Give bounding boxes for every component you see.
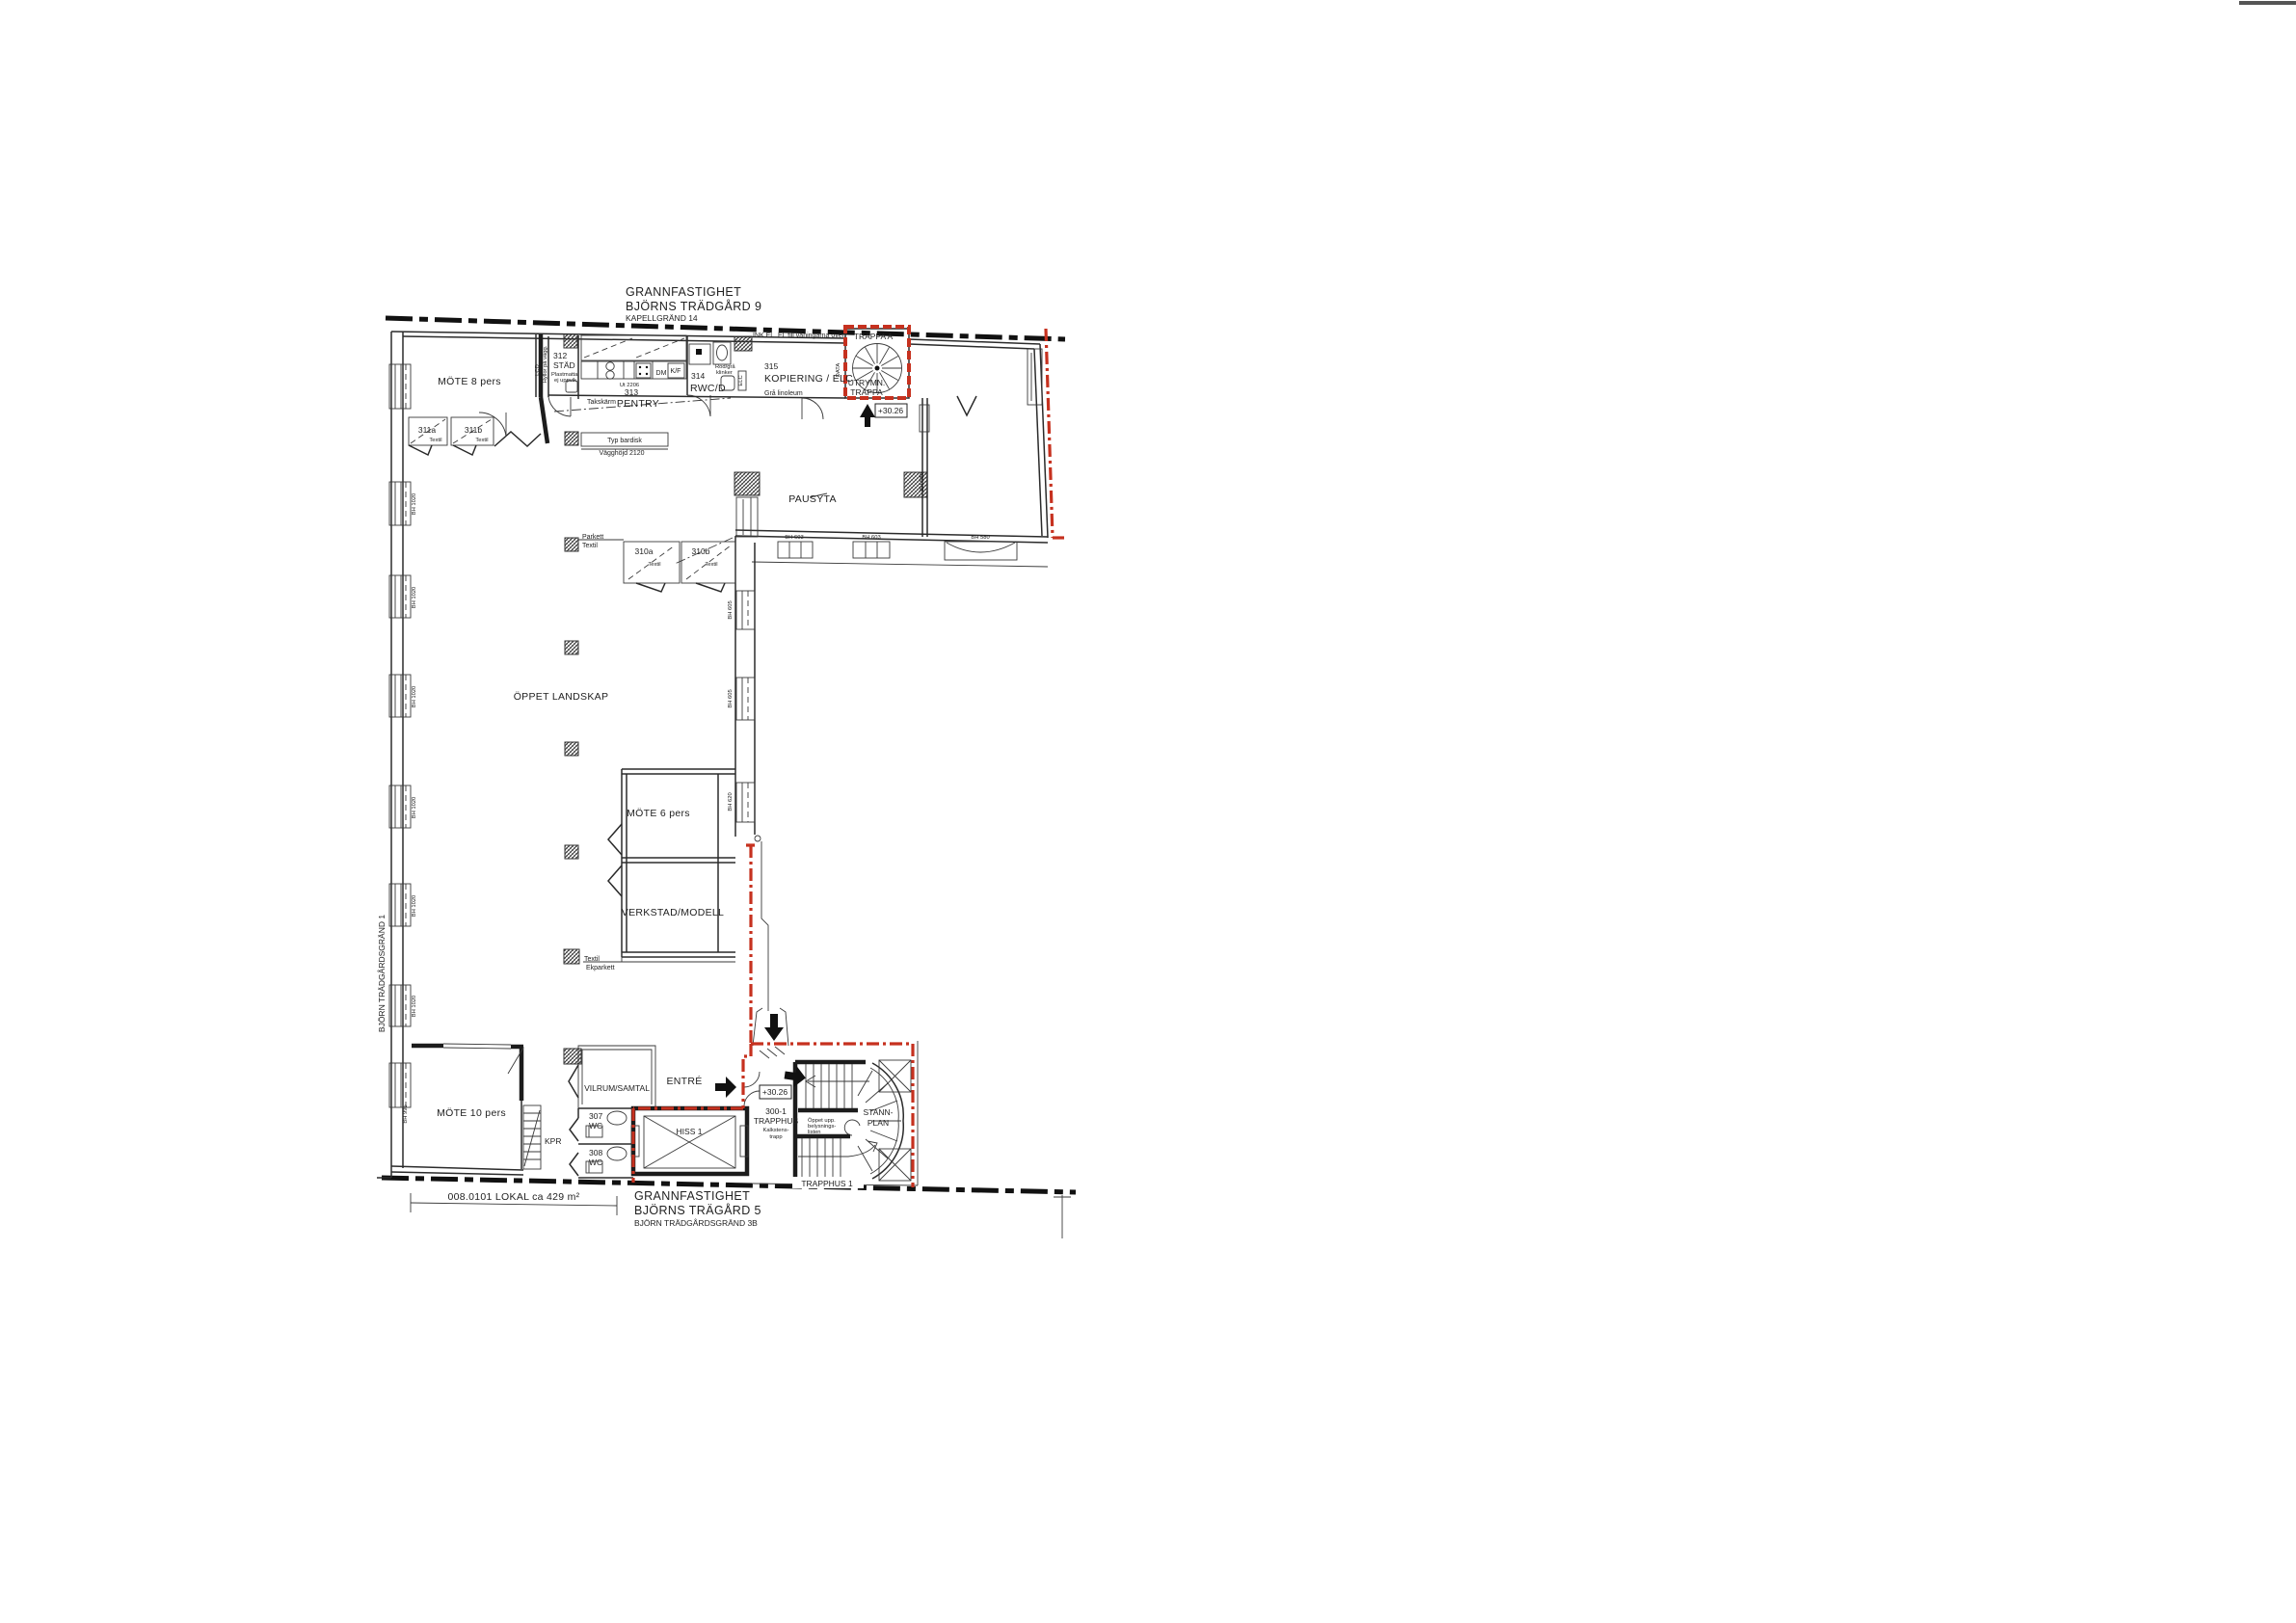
floor-plan-page: GRANNFASTIGHET BJÖRNS TRÄDGÅRD 9 KAPELLG…	[0, 0, 2296, 1623]
label-311b: 311b	[465, 425, 483, 435]
label-bh-wl2: BH 1020	[412, 587, 417, 609]
label-stann1: STANN-	[863, 1107, 893, 1117]
corridor-windows	[736, 591, 755, 822]
label-311b-mat: Textil	[475, 438, 488, 443]
label-ekparkett2: Ekparkett	[586, 965, 615, 971]
label-315: 315	[764, 361, 778, 371]
label-bh-wl6: BH 1020	[412, 996, 417, 1018]
elevator-hiss	[631, 1108, 748, 1174]
label-trappa-a: TRAPPA A	[854, 332, 894, 341]
red-boundary	[633, 327, 1064, 1187]
label-parkett-mat: Textil	[582, 543, 598, 549]
label-el-till: EL till våningarna över.	[778, 332, 846, 339]
label-bh-wl4: BH 1020	[412, 797, 417, 819]
label-gra-linoleum: Grå linoleum	[764, 389, 803, 397]
label-bh-c1: BH 605	[728, 600, 734, 619]
label-rwcd: RWC/D	[690, 383, 726, 394]
label-trapphus1: TRAPPHUS 1	[801, 1179, 853, 1188]
label-313: 313	[625, 387, 638, 397]
label-oppet-landskap: ÖPPET LANDSKAP	[514, 691, 609, 703]
label-bh-s2: BH 603	[862, 535, 880, 541]
label-bjorns-tradgard-9: BJÖRNS TRÄDGÅRD 9	[626, 299, 761, 313]
label-verkstad: VERKSTAD/MODELL	[622, 907, 724, 918]
label-stad: STÄD	[553, 360, 575, 370]
label-entre: ENTRÉ	[666, 1075, 702, 1087]
label-bjorns-tragard-5: BJÖRNS TRÄGÅRD 5	[634, 1203, 761, 1217]
label-lcd: LCD	[535, 364, 541, 376]
label-kapellgrand-14: KAPELLGRÄND 14	[626, 313, 698, 323]
label-314: 314	[691, 371, 705, 381]
label-pausyta: PAUSYTA	[788, 493, 837, 505]
label-stann2: PLAN	[868, 1118, 889, 1128]
label-308: 308	[589, 1148, 602, 1157]
label-bh-wl3: BH 1020	[412, 686, 417, 708]
label-310a-mat: Textil	[648, 562, 660, 568]
entrance-arrows	[715, 404, 875, 1098]
label-klinker2: klinker	[716, 370, 733, 376]
label-311a: 311a	[418, 425, 437, 435]
label-trapphus1-group: TRAPPHUS 1	[792, 1177, 864, 1188]
entry-arrow-down-icon	[764, 1014, 784, 1041]
label-lokal-area: 008.0101 LOKAL ca 429 m²	[448, 1191, 580, 1203]
label-dm: DM	[656, 370, 667, 377]
label-room-mote8: MÖTE 8 pers	[438, 376, 501, 387]
label-takskarm: Takskärm	[587, 399, 616, 406]
label-bh-wl1: BH 1020	[412, 493, 417, 516]
left-wall-windows	[389, 364, 411, 1107]
label-308-wc: WC	[589, 1157, 602, 1167]
level-marker-trappa-a-icon	[860, 404, 875, 427]
label-bjorn-tradgardsgrand-3b: BJÖRN TRÄDGÅRDSGRÄND 3B	[634, 1218, 758, 1228]
label-grannfastighet-bottom: GRANNFASTIGHET	[634, 1189, 750, 1203]
label-vilrum: VILRUM/SAMTAL	[584, 1083, 650, 1093]
label-bh-wl7: BH 995	[403, 1104, 409, 1123]
labels: GRANNFASTIGHET BJÖRNS TRÄDGÅRD 9 KAPELLG…	[377, 285, 990, 1228]
entry-arrow-east-icon	[715, 1077, 736, 1098]
floor-plan-svg: GRANNFASTIGHET BJÖRNS TRÄDGÅRD 9 KAPELLG…	[0, 0, 2296, 1623]
mote6-verkstad-walls	[583, 769, 735, 962]
label-mote10: MÖTE 10 pers	[437, 1107, 506, 1119]
label-300-1: 300-1	[765, 1106, 787, 1116]
svg-text:+30.26: +30.26	[878, 406, 904, 415]
label-bh-c3: BH 620	[728, 792, 734, 811]
label-ink-el: INK EL	[753, 333, 774, 339]
label-ekparkett1: Textil	[584, 956, 600, 963]
label-bardisk: Typ bardisk	[607, 438, 642, 444]
label-hiss1: HISS 1	[677, 1127, 703, 1136]
label-bh-s3: BH 580	[971, 535, 989, 541]
label-pentry: PENTRY	[617, 398, 659, 410]
label-307: 307	[589, 1111, 602, 1121]
label-stad-note2: ej uppvik	[554, 378, 576, 384]
label-parkett: Parkett	[582, 534, 603, 541]
label-307-wc: WC	[589, 1121, 602, 1131]
label-kf: K/F	[671, 368, 681, 375]
label-oppet-upp1: Öppet upp.	[808, 1117, 836, 1124]
label-utrymn1: UTRYMN.	[848, 378, 886, 387]
label-trapphus: TRAPPHUS	[754, 1116, 799, 1126]
level-box-trapphus: +30.26	[760, 1085, 791, 1099]
label-utrymn2: TRAPPA	[850, 387, 883, 397]
label-bh-s1: BH 603	[785, 535, 803, 541]
property-lines	[382, 318, 1076, 1238]
label-310a: 310a	[635, 546, 654, 556]
label-oppet-upp3: listen	[808, 1130, 821, 1135]
label-hyllor: Hyllor på vägg.	[542, 345, 548, 383]
svg-text:+30.26: +30.26	[762, 1087, 788, 1097]
label-311a-mat: Textil	[429, 438, 441, 443]
label-klinker1: Röd/grå	[715, 363, 735, 370]
label-street-left: BJÖRN TRÄDGÅRDSGRÄND 1	[377, 915, 387, 1032]
level-box-trappa-a: +30.26	[875, 404, 907, 417]
label-bh-wl5: BH 1020	[412, 895, 417, 918]
label-mote6: MÖTE 6 pers	[627, 808, 690, 819]
label-310b-mat: Textil	[705, 562, 717, 568]
label-kalksten2: trapp	[769, 1134, 782, 1140]
label-bh-side: BH 580	[920, 472, 925, 491]
label-312: 312	[553, 351, 567, 360]
label-310b: 310b	[692, 546, 710, 556]
label-kalksten1: Kalkstens-	[762, 1128, 788, 1133]
label-bh-c2: BH 605	[728, 689, 734, 707]
label-grannfastighet-top: GRANNFASTIGHET	[626, 285, 741, 299]
label-elc: ELC	[738, 375, 744, 386]
label-vagghojd: Vägghöjd 2120	[599, 450, 644, 457]
label-data: DATA	[836, 363, 841, 378]
outer-walls	[377, 332, 1048, 1178]
label-kpr: KPR	[545, 1136, 561, 1146]
